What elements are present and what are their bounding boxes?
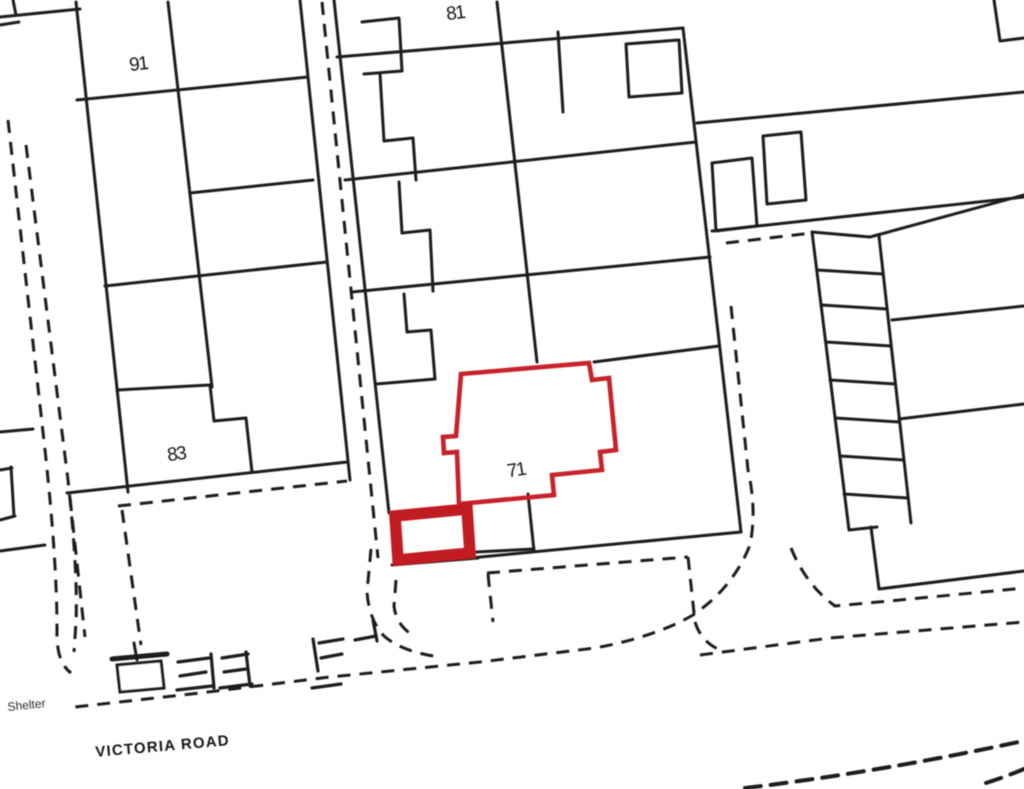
parcel-label-83: 83 bbox=[166, 443, 187, 466]
parcel-label-71: 71 bbox=[506, 459, 528, 483]
site-plan-map: 91 81 83 71 Shelter VICTORIA ROAD bbox=[0, 0, 1024, 789]
central-road-edges bbox=[300, 0, 389, 513]
east-terrace-lines bbox=[812, 195, 1024, 589]
shelter-icon bbox=[112, 643, 167, 692]
central-parcel-and-building-lines bbox=[337, 2, 741, 565]
south-road-dashed-kerbs bbox=[745, 741, 1024, 788]
road-name-label: VICTORIA ROAD bbox=[95, 732, 231, 761]
highlighted-property-outline bbox=[443, 363, 616, 504]
northeast-building-lines bbox=[697, 0, 1024, 231]
parcel-label-81: 81 bbox=[445, 2, 466, 25]
west-parcel-lines bbox=[0, 0, 347, 551]
application-site-marker bbox=[395, 509, 470, 560]
parcel-label-91: 91 bbox=[128, 53, 149, 76]
plan-canvas: 91 81 83 71 Shelter VICTORIA ROAD bbox=[0, 0, 1024, 789]
bus-stop-marks bbox=[177, 620, 377, 690]
shelter-label: Shelter bbox=[7, 696, 46, 714]
